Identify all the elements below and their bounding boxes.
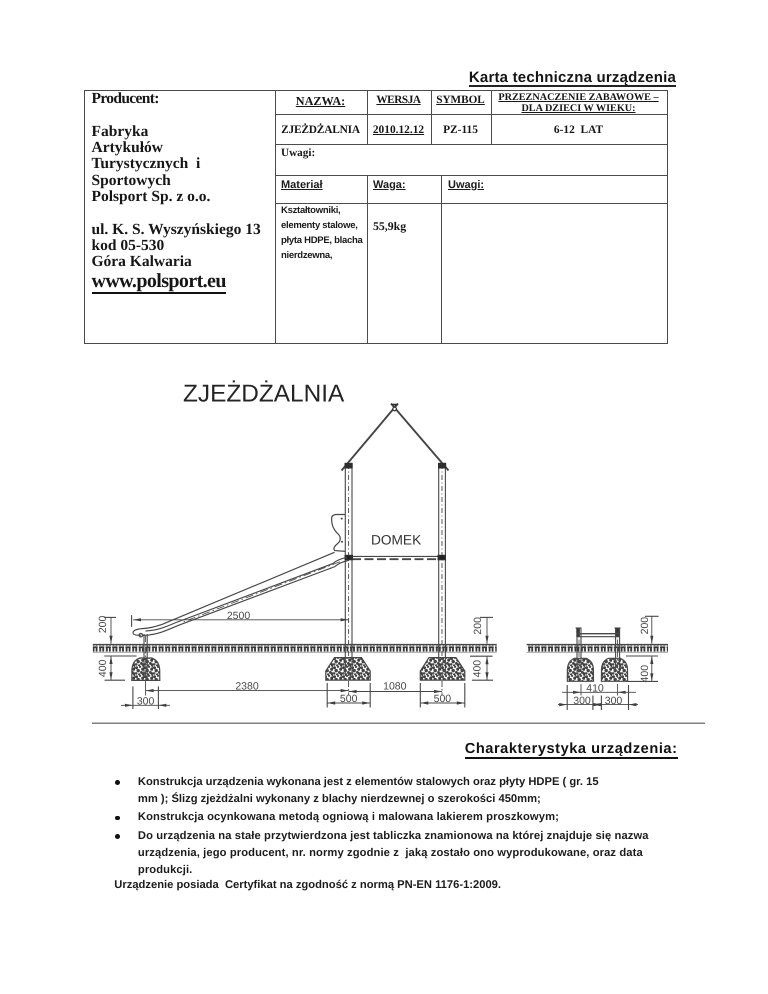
svg-text:DOMEK: DOMEK <box>371 533 421 548</box>
svg-text:500: 500 <box>340 693 358 705</box>
svg-text:200: 200 <box>97 615 109 633</box>
svg-text:400: 400 <box>639 665 651 683</box>
svg-text:1080: 1080 <box>383 681 407 693</box>
svg-text:2500: 2500 <box>227 610 251 622</box>
svg-text:300: 300 <box>573 695 591 707</box>
svg-text:300: 300 <box>137 696 155 708</box>
svg-text:200: 200 <box>472 617 484 635</box>
svg-text:500: 500 <box>434 693 452 705</box>
svg-text:ZJEŻDŻALNIA: ZJEŻDŻALNIA <box>183 380 345 408</box>
svg-text:400: 400 <box>472 660 484 678</box>
svg-text:200: 200 <box>639 617 651 635</box>
svg-text:2380: 2380 <box>235 681 259 693</box>
svg-text:300: 300 <box>605 695 623 707</box>
svg-text:400: 400 <box>97 659 109 677</box>
svg-text:410: 410 <box>586 682 604 694</box>
